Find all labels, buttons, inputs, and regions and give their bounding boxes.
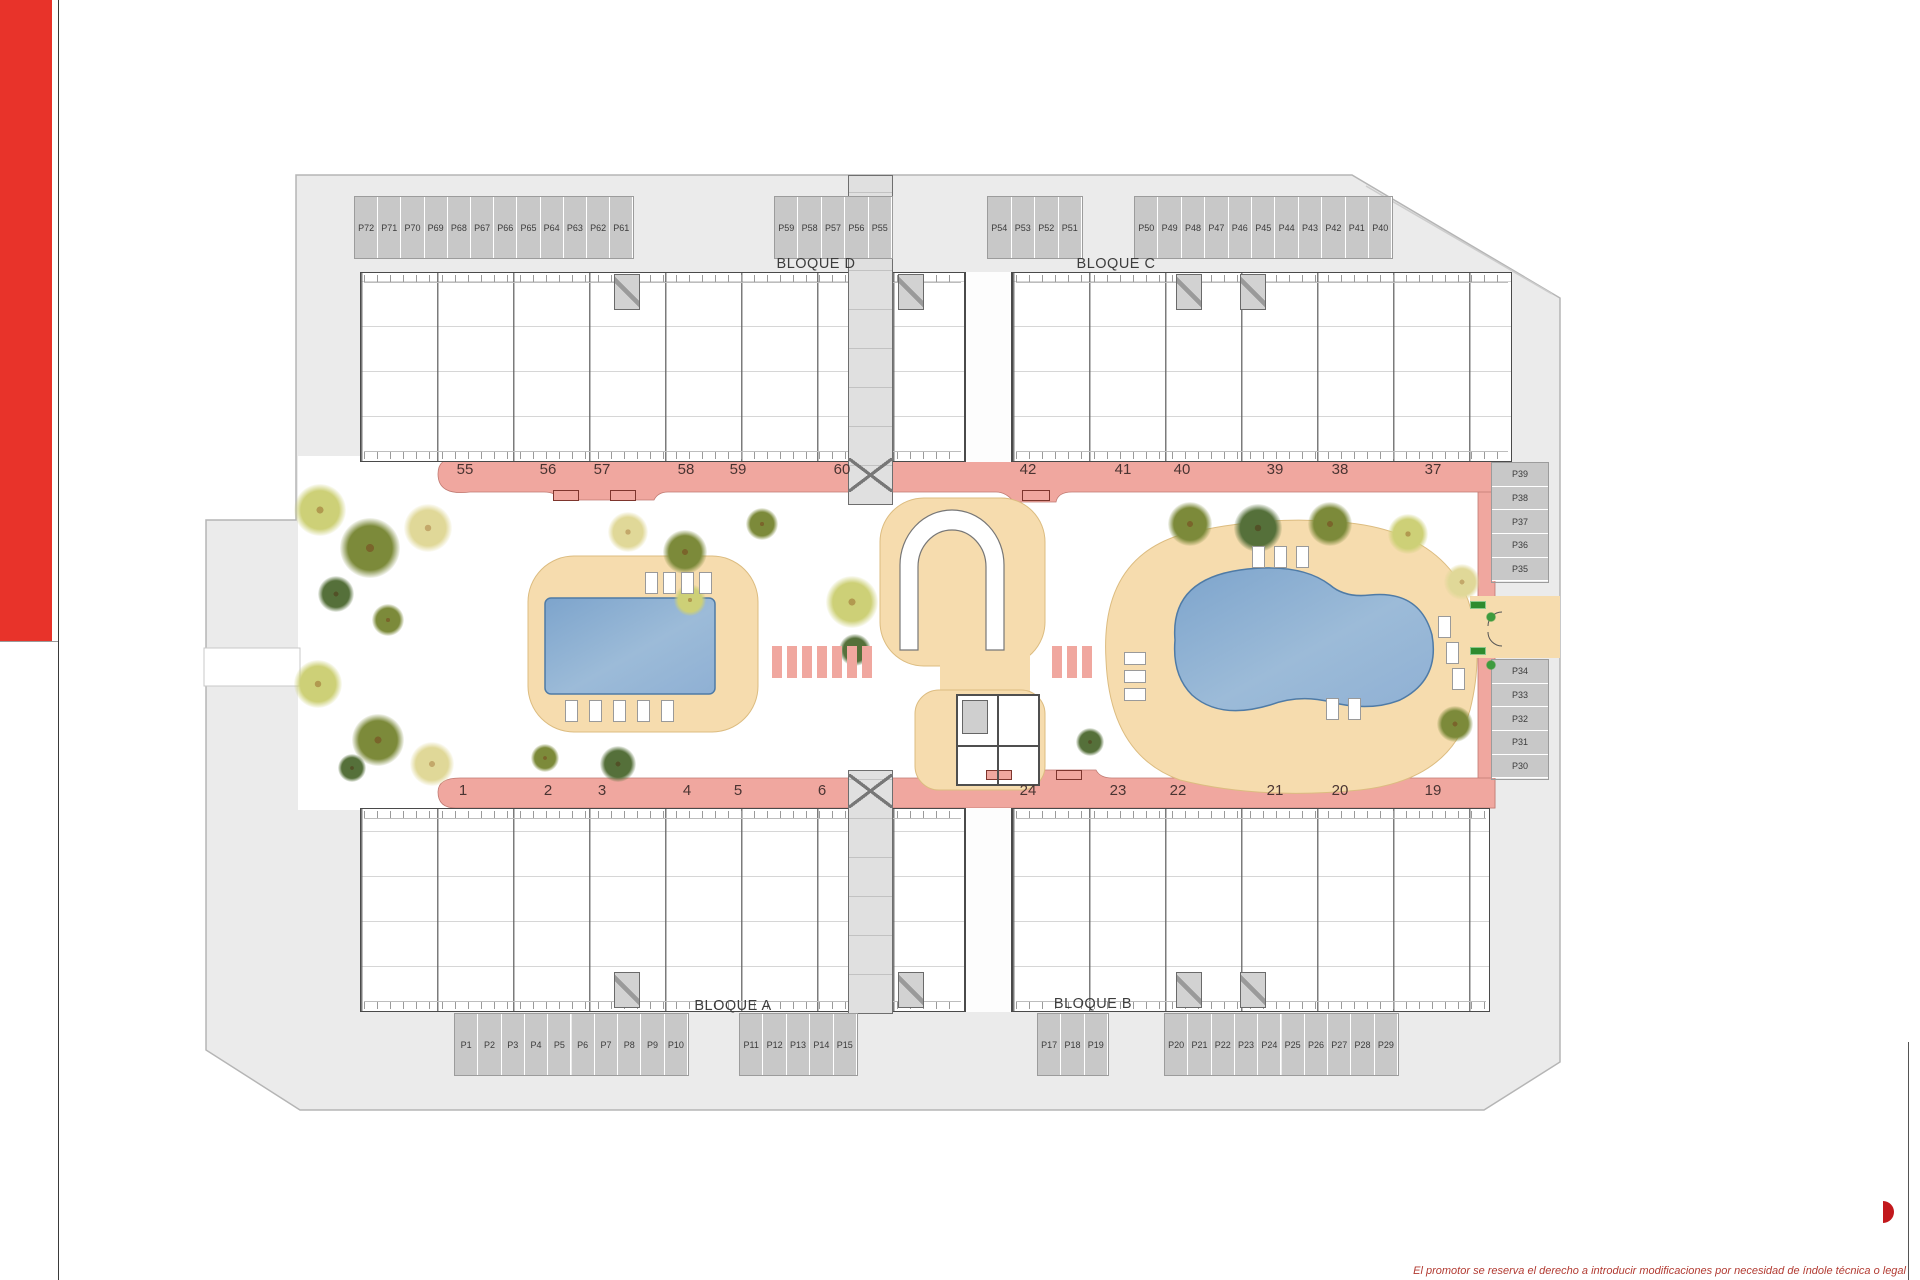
parking-cell: P58 <box>798 197 821 258</box>
parking-cell: P64 <box>541 197 564 258</box>
parking-cell: P71 <box>378 197 401 258</box>
parking-cell: P45 <box>1252 197 1275 258</box>
parking-group-bottom-left: P1P2P3P4P5P6P7P8P9P10 <box>455 1014 688 1075</box>
parking-cell: P48 <box>1182 197 1205 258</box>
plot-number: 57 <box>584 461 620 478</box>
parking-cell: P34 <box>1492 660 1548 684</box>
sun-lounger <box>1348 698 1361 720</box>
parking-group-bottom-mid-1: P11P12P13P14P15 <box>740 1014 857 1075</box>
sun-lounger <box>565 700 578 722</box>
tree <box>1308 502 1352 546</box>
plot-number: 39 <box>1257 461 1293 478</box>
tree <box>1444 564 1480 600</box>
crosswalk-stripe <box>1082 646 1092 678</box>
crosswalk-stripe <box>802 646 812 678</box>
plot-number: 21 <box>1257 782 1293 799</box>
tree <box>1234 504 1282 552</box>
plot-number: 41 <box>1105 461 1141 478</box>
disclaimer-text: El promotor se reserva el derecho a intr… <box>1413 1265 1906 1277</box>
parking-cell: P21 <box>1188 1014 1211 1075</box>
parking-cell: P69 <box>425 197 448 258</box>
block-label-bloque-a: BLOQUE A <box>663 998 803 1014</box>
parking-group-right-upper: P39P38P37P36P35 <box>1492 463 1548 582</box>
parking-group-top-mid-1: P59P58P57P56P55 <box>775 197 892 258</box>
parking-cell: P22 <box>1212 1014 1235 1075</box>
parking-cell: P44 <box>1275 197 1298 258</box>
parking-cell: P29 <box>1375 1014 1398 1075</box>
building-gap-corridor-bottom <box>965 808 1012 1012</box>
stair-core <box>898 972 924 1008</box>
parking-cell: P30 <box>1492 755 1548 779</box>
stair-core <box>1240 972 1266 1008</box>
parking-cell: P49 <box>1158 197 1181 258</box>
tree <box>1076 728 1104 756</box>
parking-group-right-lower: P34P33P32P31P30 <box>1492 660 1548 779</box>
stair-core <box>614 274 640 310</box>
tree <box>318 576 354 612</box>
frame-line-left <box>58 0 59 1280</box>
tree <box>531 744 559 772</box>
plot-number: 4 <box>669 782 705 799</box>
tree <box>1388 514 1428 554</box>
parking-cell: P28 <box>1351 1014 1374 1075</box>
parking-cell: P33 <box>1492 684 1548 708</box>
parking-cell: P14 <box>810 1014 833 1075</box>
crosswalk-stripe <box>862 646 872 678</box>
block-label-bloque-d: BLOQUE D <box>746 256 886 272</box>
tree <box>404 504 452 552</box>
parking-cell: P42 <box>1322 197 1345 258</box>
parking-group-top-left: P72P71P70P69P68P67P66P65P64P63P62P61 <box>355 197 633 258</box>
sun-lounger <box>1296 546 1309 568</box>
parking-cell: P72 <box>355 197 378 258</box>
parking-cell: P5 <box>548 1014 571 1075</box>
bench <box>1022 490 1050 501</box>
plot-number: 3 <box>584 782 620 799</box>
sun-lounger <box>661 700 674 722</box>
parking-cell: P66 <box>494 197 517 258</box>
tree <box>410 742 454 786</box>
tree <box>294 660 342 708</box>
parking-cell: P8 <box>618 1014 641 1075</box>
plot-number: 59 <box>720 461 756 478</box>
frame-tick <box>0 641 58 642</box>
parking-cell: P65 <box>517 197 540 258</box>
plot-number: 2 <box>530 782 566 799</box>
parking-cell: P36 <box>1492 534 1548 558</box>
tree <box>338 754 366 782</box>
block-label-bloque-b: BLOQUE B <box>1023 996 1163 1012</box>
parking-cell: P35 <box>1492 558 1548 582</box>
parking-cell: P19 <box>1085 1014 1108 1075</box>
bench <box>610 490 636 501</box>
plot-number: 20 <box>1322 782 1358 799</box>
stair-core <box>898 274 924 310</box>
plot-number: 5 <box>720 782 756 799</box>
parking-cell: P23 <box>1235 1014 1258 1075</box>
parking-cell: P50 <box>1135 197 1158 258</box>
bench <box>986 770 1012 780</box>
tree <box>746 508 778 540</box>
tree <box>826 576 878 628</box>
sun-lounger <box>613 700 626 722</box>
crosswalk-stripe <box>1052 646 1062 678</box>
plot-number: 56 <box>530 461 566 478</box>
parking-group-bottom-right: P20P21P22P23P24P25P26P27P28P29 <box>1165 1014 1398 1075</box>
parking-cell: P3 <box>502 1014 525 1075</box>
parking-cell: P59 <box>775 197 798 258</box>
site-base-layer <box>0 0 1920 1280</box>
tree <box>294 484 346 536</box>
plot-number: 38 <box>1322 461 1358 478</box>
parking-cell: P61 <box>610 197 633 258</box>
crosswalk-stripe <box>832 646 842 678</box>
tree <box>1437 706 1473 742</box>
pavilion-wall <box>956 745 1040 747</box>
sun-lounger <box>1124 688 1146 701</box>
parking-cell: P32 <box>1492 707 1548 731</box>
building-gap-corridor-top <box>965 272 1012 462</box>
parking-cell: P1 <box>455 1014 478 1075</box>
parking-cell: P70 <box>401 197 424 258</box>
entrance-sign <box>1470 601 1486 609</box>
parking-cell: P62 <box>587 197 610 258</box>
crosswalk-stripe <box>817 646 827 678</box>
stair-core <box>614 972 640 1008</box>
left-red-margin-bar <box>0 0 52 642</box>
shrub <box>1486 660 1496 670</box>
stair-core <box>1240 274 1266 310</box>
parking-cell: P56 <box>845 197 868 258</box>
sun-lounger <box>1326 698 1339 720</box>
site-plan: BLOQUE D BLOQUE C BLOQUE A BLOQUE B El p… <box>0 0 1920 1280</box>
parking-cell: P43 <box>1299 197 1322 258</box>
parking-cell: P20 <box>1165 1014 1188 1075</box>
pavilion-wall <box>997 694 999 786</box>
sun-lounger <box>589 700 602 722</box>
parking-cell: P51 <box>1059 197 1083 258</box>
stair-core <box>1176 274 1202 310</box>
sun-lounger <box>681 572 694 594</box>
parking-cell: P52 <box>1035 197 1059 258</box>
parking-cell: P53 <box>1012 197 1036 258</box>
parking-cell: P12 <box>763 1014 786 1075</box>
tree <box>372 604 404 636</box>
parking-cell: P47 <box>1205 197 1228 258</box>
parking-cell: P15 <box>834 1014 857 1075</box>
parking-cell: P17 <box>1038 1014 1061 1075</box>
parking-cell: P11 <box>740 1014 763 1075</box>
stair-core <box>1176 972 1202 1008</box>
frame-line-right <box>1908 1042 1909 1280</box>
crosswalk-stripe <box>787 646 797 678</box>
parking-cell: P57 <box>822 197 845 258</box>
crosswalk-stripe <box>1067 646 1077 678</box>
plot-number: 1 <box>445 782 481 799</box>
plot-number: 22 <box>1160 782 1196 799</box>
sun-lounger <box>637 700 650 722</box>
parking-group-bottom-mid-2: P17P18P19 <box>1038 1014 1108 1075</box>
shrub <box>1486 612 1496 622</box>
walkway-door-mark <box>848 774 893 808</box>
sun-lounger <box>1124 652 1146 665</box>
crosswalk-stripe <box>772 646 782 678</box>
parking-cell: P63 <box>564 197 587 258</box>
crosswalk-stripe <box>847 646 857 678</box>
parking-cell: P46 <box>1229 197 1252 258</box>
plot-number: 42 <box>1010 461 1046 478</box>
parking-cell: P4 <box>525 1014 548 1075</box>
bench <box>553 490 579 501</box>
parking-cell: P24 <box>1258 1014 1281 1075</box>
sun-lounger <box>663 572 676 594</box>
plot-number: 6 <box>804 782 840 799</box>
tree <box>600 746 636 782</box>
tree <box>608 512 648 552</box>
side-entrance <box>204 648 300 686</box>
sun-lounger <box>1274 546 1287 568</box>
tree <box>663 530 707 574</box>
tree <box>1168 502 1212 546</box>
parking-cell: P55 <box>869 197 892 258</box>
parking-cell: P54 <box>988 197 1012 258</box>
plot-number: 55 <box>447 461 483 478</box>
parking-cell: P18 <box>1061 1014 1084 1075</box>
plot-number: 19 <box>1415 782 1451 799</box>
parking-cell: P26 <box>1305 1014 1328 1075</box>
tree <box>340 518 400 578</box>
plot-number: 24 <box>1010 782 1046 799</box>
parking-cell: P68 <box>448 197 471 258</box>
sun-lounger <box>1446 642 1459 664</box>
plot-number: 58 <box>668 461 704 478</box>
parking-cell: P40 <box>1369 197 1392 258</box>
entrance-sign <box>1470 647 1486 655</box>
sun-lounger <box>699 572 712 594</box>
plot-number: 23 <box>1100 782 1136 799</box>
parking-cell: P9 <box>641 1014 664 1075</box>
parking-cell: P37 <box>1492 510 1548 534</box>
parking-group-top-mid-2: P54P53P52P51 <box>988 197 1082 258</box>
sun-lounger <box>1452 668 1465 690</box>
sun-lounger <box>1252 546 1265 568</box>
parking-cell: P41 <box>1346 197 1369 258</box>
sun-lounger <box>1438 616 1451 638</box>
parking-group-top-right: P50P49P48P47P46P45P44P43P42P41P40 <box>1135 197 1392 258</box>
parking-cell: P7 <box>595 1014 618 1075</box>
plot-number: 40 <box>1164 461 1200 478</box>
parking-cell: P13 <box>787 1014 810 1075</box>
parking-cell: P25 <box>1282 1014 1305 1075</box>
parking-cell: P38 <box>1492 487 1548 511</box>
block-label-bloque-c: BLOQUE C <box>1046 256 1186 272</box>
parking-cell: P6 <box>572 1014 595 1075</box>
pavilion-core <box>962 700 988 734</box>
plot-number: 60 <box>824 461 860 478</box>
parking-cell: P2 <box>478 1014 501 1075</box>
parking-cell: P39 <box>1492 463 1548 487</box>
parking-cell: P10 <box>665 1014 688 1075</box>
bench <box>1056 770 1082 780</box>
sun-lounger <box>1124 670 1146 683</box>
plot-number: 37 <box>1415 461 1451 478</box>
parking-cell: P27 <box>1328 1014 1351 1075</box>
parking-cell: P67 <box>471 197 494 258</box>
parking-cell: P31 <box>1492 731 1548 755</box>
sun-lounger <box>645 572 658 594</box>
